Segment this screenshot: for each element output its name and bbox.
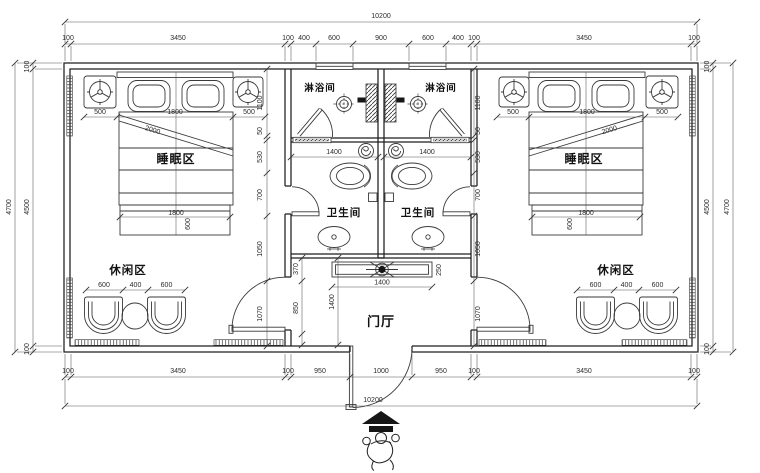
side-table: [122, 303, 148, 329]
door-guest-left: [229, 277, 285, 333]
toilet-icon: [330, 163, 371, 189]
dim-left-outer: 4700: [6, 199, 13, 215]
shower-left-threshold-hatch: [296, 139, 329, 141]
door-leaf: [477, 327, 530, 331]
dim: 500: [243, 109, 255, 116]
entrance: [346, 346, 412, 471]
dim: 700: [475, 189, 482, 201]
sink-icon: [318, 227, 350, 251]
lamp-icon: [649, 79, 675, 105]
dim: 100: [688, 368, 700, 375]
dim: 100: [24, 61, 31, 73]
dim: 400: [130, 282, 142, 289]
witness-lines: [17, 24, 731, 404]
dim: 3450: [576, 35, 592, 42]
door-shower-right: [429, 108, 464, 137]
flush-valve-icon: [389, 144, 404, 159]
entry-direction-arrow-icon: [362, 411, 400, 424]
heater-strip: [67, 278, 73, 338]
door-shower-left: [298, 108, 333, 137]
shower-right-threshold-hatch: [434, 139, 467, 141]
dim: 1400: [326, 149, 342, 156]
dim: 100: [704, 343, 711, 355]
dim: 3450: [170, 35, 186, 42]
floor-plan-canvas: 10200 100 3450 100 400 600 900 600 400 1…: [0, 0, 760, 473]
dim: 600: [652, 282, 664, 289]
dim: 850: [293, 302, 300, 314]
exterior-wall-inner: [70, 69, 692, 346]
pillow-inner: [187, 85, 219, 107]
partition-left: [285, 69, 291, 346]
paper-holder: [385, 193, 394, 202]
dim: 500: [507, 109, 519, 116]
room-label-lounge-left: 休闲区: [108, 263, 147, 277]
room-label-shower-left: 淋浴间: [304, 82, 336, 94]
dim: 530: [257, 151, 264, 163]
heater-strip: [479, 340, 546, 346]
dim: 100: [24, 343, 31, 355]
person-figure-icon: [363, 433, 400, 471]
dim: 2000: [601, 125, 618, 136]
dim: 3450: [170, 368, 186, 375]
door-leaf: [298, 108, 323, 136]
dim: 50: [257, 127, 264, 135]
floor-plan-drawing: 10200 100 3450 100 400 600 900 600 400 1…: [0, 0, 760, 473]
dim: 50: [475, 127, 482, 135]
toilet-icon: [391, 163, 432, 189]
dim: 600: [422, 35, 434, 42]
dim: 600: [98, 282, 110, 289]
guest-room-left: [84, 72, 285, 333]
side-table: [614, 303, 640, 329]
dim: 500: [94, 109, 106, 116]
door-swing-arc: [321, 109, 333, 138]
dim: 950: [314, 368, 326, 375]
armchair: [85, 297, 123, 333]
shower-divider-hatch-right: [385, 84, 396, 122]
dim: 600: [161, 282, 173, 289]
dim: 1100: [257, 95, 264, 110]
dim: 100: [282, 368, 294, 375]
dim: 100: [282, 35, 294, 42]
door-swing-arc: [429, 109, 441, 138]
sink-icon: [412, 227, 444, 251]
dim: 900: [375, 35, 387, 42]
dim: 1400: [419, 149, 435, 156]
door-leaf: [232, 327, 285, 331]
dim: 700: [257, 189, 264, 201]
headboard: [117, 72, 233, 78]
door-leaf: [443, 212, 470, 216]
dim: 600: [590, 282, 602, 289]
shower-head-left-icon: [358, 98, 366, 103]
dim: 530: [475, 151, 482, 163]
dim: 100: [62, 35, 74, 42]
dim: 600: [328, 35, 340, 42]
room-label-toilet-left: 卫生间: [327, 206, 362, 219]
dim-left-inner: 4500: [24, 199, 31, 215]
door-bath-right: [443, 187, 470, 216]
dim: 1800: [167, 109, 183, 116]
dim: 1800: [579, 109, 595, 116]
pillow-inner: [543, 85, 575, 107]
floor-drain-icon: [408, 94, 429, 115]
dim: 500: [656, 109, 668, 116]
heater-strip: [690, 278, 696, 338]
walls: [64, 63, 698, 352]
dim: 1000: [373, 368, 389, 375]
dim: 100: [688, 35, 700, 42]
armchair: [577, 297, 615, 333]
lamp-icon: [501, 79, 527, 105]
dim-right-outer: 4700: [724, 199, 731, 215]
dim: 3450: [576, 368, 592, 375]
door-leaf: [440, 108, 465, 136]
dim: 400: [452, 35, 464, 42]
shower-head-right-icon: [397, 98, 405, 103]
room-label-toilet-right: 卫生间: [401, 206, 436, 219]
dim: 1100: [475, 95, 482, 110]
dim: 950: [435, 368, 447, 375]
dim: 1400: [374, 280, 390, 287]
headboard: [529, 72, 645, 78]
dim: 600: [185, 218, 192, 230]
dim-total-bottom: 10200: [363, 397, 383, 404]
dim-right-inner: 4500: [704, 199, 711, 215]
dim: 1050: [257, 241, 264, 257]
fan-hub-icon: [378, 266, 385, 273]
room-label-shower-right: 淋浴间: [425, 82, 457, 94]
dim: 100: [704, 61, 711, 73]
pillow-inner: [133, 85, 165, 107]
dim: 1400: [329, 294, 336, 310]
dim: 100: [62, 368, 74, 375]
lamp-icon: [87, 79, 113, 105]
openings: [293, 63, 469, 143]
dim: 1050: [475, 241, 482, 257]
door-leaf: [292, 212, 319, 216]
door-swing-arc: [443, 187, 470, 214]
heater-strip: [214, 340, 283, 346]
heater-strip: [67, 76, 73, 136]
entry-arrow-bar-icon: [369, 426, 393, 432]
armchair: [148, 297, 186, 333]
room-label-sleep-right: 睡眠区: [564, 151, 603, 166]
dim: 400: [621, 282, 633, 289]
dim: 100: [468, 368, 480, 375]
dim: 1800: [578, 210, 594, 217]
room-label-sleep-left: 睡眠区: [156, 151, 195, 166]
entrance-jambs: [350, 346, 412, 352]
pillow-inner: [597, 85, 629, 107]
dim: 1070: [475, 306, 482, 322]
paper-holder: [369, 193, 378, 202]
partition-middle: [378, 69, 384, 258]
door-swing-arc: [477, 277, 530, 329]
heater-strip: [75, 340, 139, 346]
room-label-hall: 门厅: [367, 314, 395, 329]
dim: 250: [436, 264, 443, 276]
wall-hall-top: [291, 254, 471, 258]
dim: 1070: [257, 306, 264, 322]
heater-strip: [622, 340, 687, 346]
dim: 1800: [168, 210, 184, 217]
door-swing-arc: [292, 187, 319, 214]
dim: 600: [567, 218, 574, 230]
heater-strip: [690, 76, 696, 136]
dim: 370: [293, 263, 300, 275]
shower-divider-hatch-left: [366, 84, 377, 122]
center-block: [292, 94, 470, 278]
dim: 100: [468, 35, 480, 42]
room-label-lounge-right: 休闲区: [596, 263, 635, 277]
flush-valve-icon: [359, 144, 374, 159]
dim: 400: [298, 35, 310, 42]
door-bath-left: [292, 187, 319, 216]
dim-total-top: 10200: [371, 13, 391, 20]
floor-drain-icon: [334, 94, 355, 115]
exterior-wall-outer: [64, 63, 698, 352]
armchair: [640, 297, 678, 333]
dim: 2000: [144, 125, 161, 136]
hall-cabinet: [332, 262, 432, 277]
door-guest-right: [477, 277, 533, 333]
